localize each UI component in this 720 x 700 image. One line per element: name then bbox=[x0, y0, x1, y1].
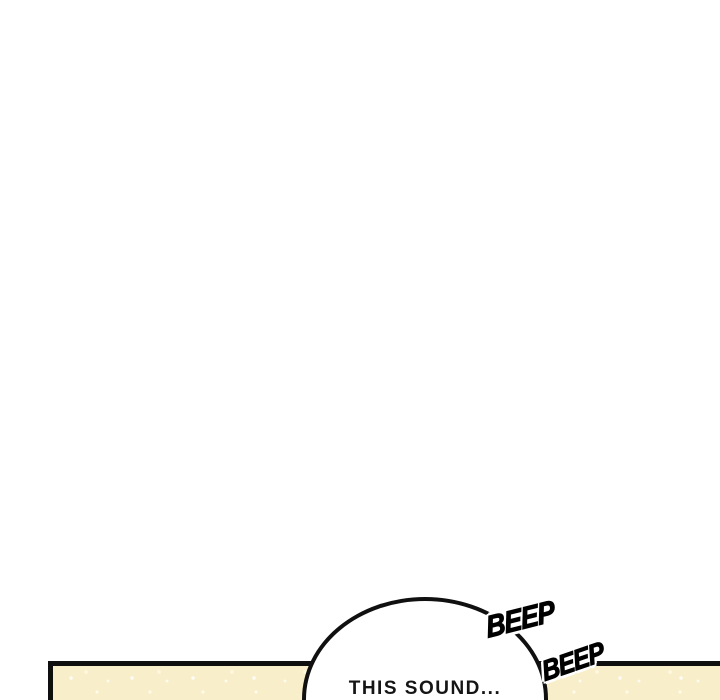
comic-page: THIS SOUND... BEEP BEEP bbox=[0, 0, 720, 700]
speech-bubble-text: THIS SOUND... bbox=[302, 679, 548, 699]
